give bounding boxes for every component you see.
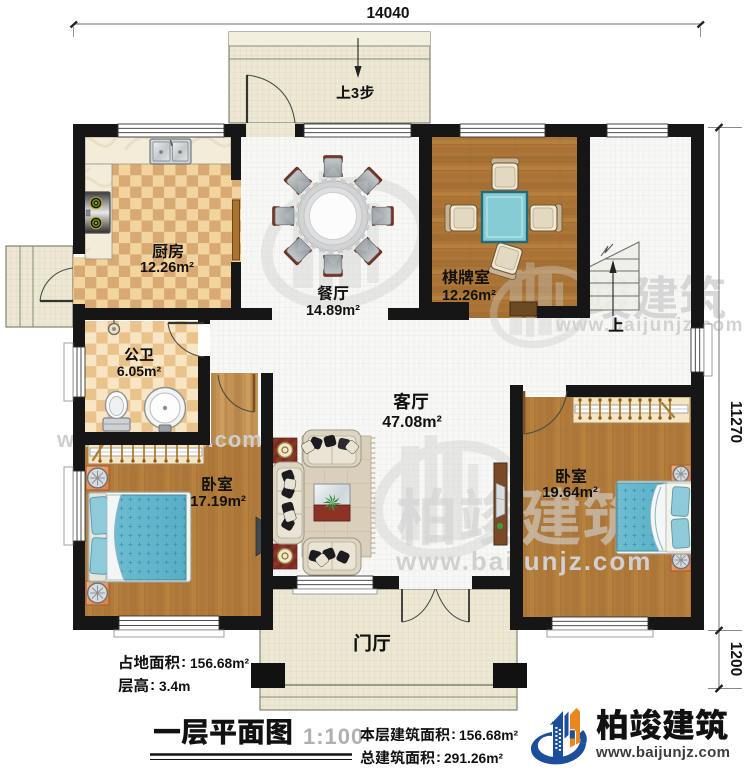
svg-text:1200: 1200	[727, 642, 744, 676]
svg-text:1:100: 1:100	[303, 724, 364, 749]
svg-text:19.64m²: 19.64m²	[542, 484, 598, 501]
svg-text:12.26m²: 12.26m²	[140, 260, 194, 276]
svg-text:6.05m²: 6.05m²	[117, 363, 162, 379]
svg-text::: :	[181, 654, 186, 671]
svg-text:14.89m²: 14.89m²	[306, 303, 360, 319]
svg-text::: :	[451, 726, 456, 743]
svg-text::: :	[150, 677, 155, 694]
svg-text:11270: 11270	[727, 401, 744, 443]
svg-text:156.68m²: 156.68m²	[459, 728, 518, 743]
svg-text:3: 3	[351, 86, 359, 102]
svg-text:14040: 14040	[366, 5, 409, 22]
svg-text::: :	[436, 749, 441, 766]
svg-text:www.baijunjz.com: www.baijunjz.com	[595, 744, 730, 761]
svg-text:291.26m²: 291.26m²	[444, 751, 503, 766]
svg-text:17.19m²: 17.19m²	[190, 493, 246, 510]
svg-text:3.4m: 3.4m	[159, 679, 190, 694]
svg-text:www.baijunjz.com: www.baijunjz.com	[555, 315, 744, 336]
svg-text:156.68m²: 156.68m²	[190, 656, 249, 671]
svg-text:www.baijunjz.com: www.baijunjz.com	[395, 546, 652, 576]
svg-text:12.26m²: 12.26m²	[442, 288, 496, 304]
svg-text:47.08m²: 47.08m²	[382, 414, 442, 431]
